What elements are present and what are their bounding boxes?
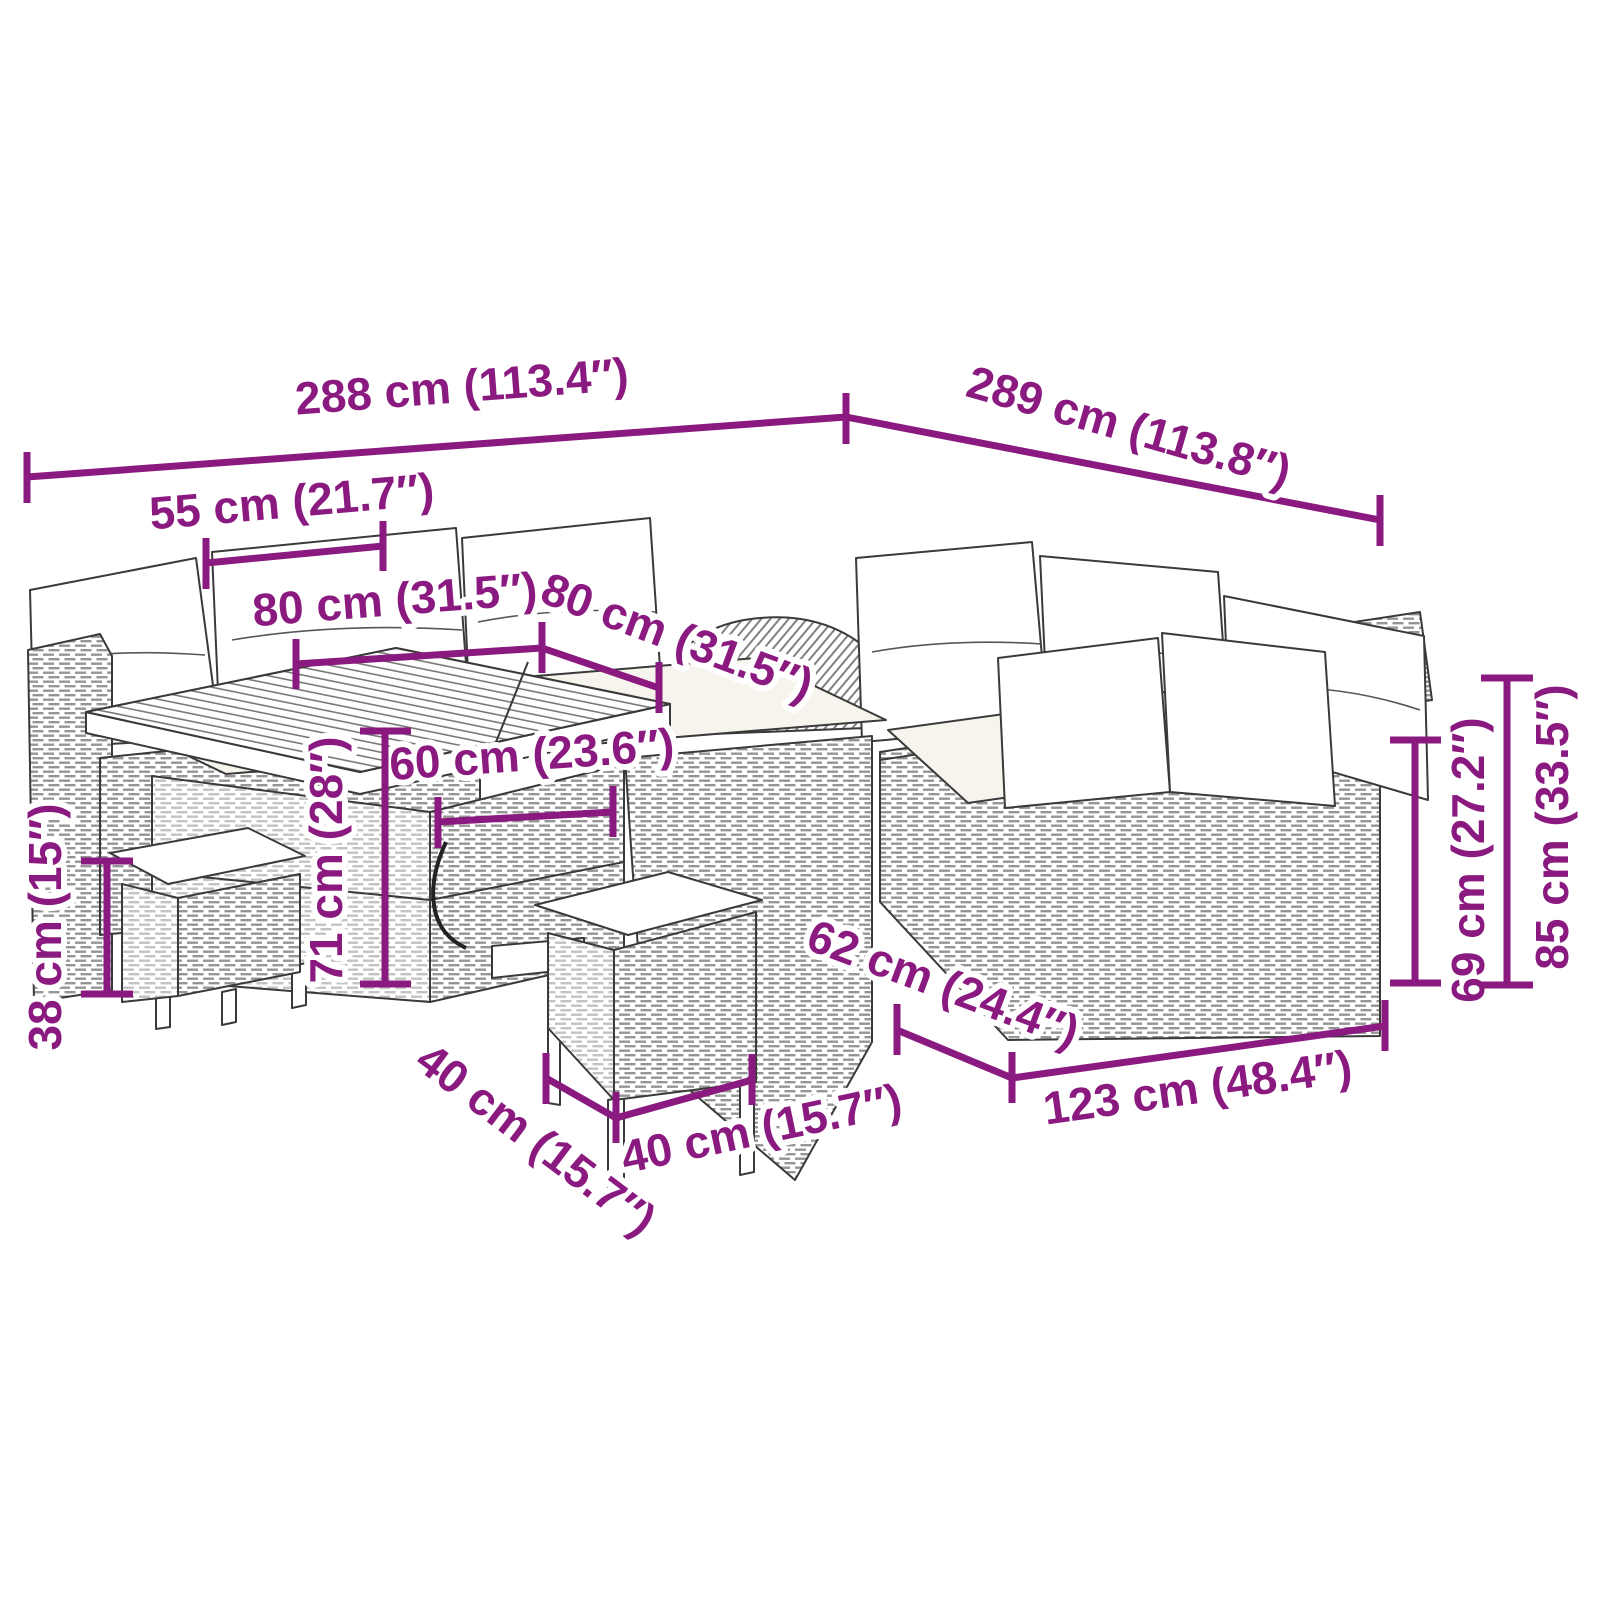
dim-line-289: 289 cm (113.8″) <box>846 355 1380 546</box>
dim-line-85: 85 cm (33.5″) <box>1481 678 1578 985</box>
dim-label-38: 38 cm (15″) <box>19 803 71 1050</box>
dimension-diagram: 288 cm (113.4″) 289 cm (113.8″) 55 cm (2… <box>0 0 1600 1600</box>
dim-label-69: 69 cm (27.2″) <box>1442 717 1494 1002</box>
diagram-canvas: 288 cm (113.4″) 289 cm (113.8″) 55 cm (2… <box>0 0 1600 1600</box>
dim-label-55: 55 cm (21.7″) <box>147 463 436 540</box>
dim-label-71: 71 cm (28″) <box>300 736 352 983</box>
dim-line-288: 288 cm (113.4″) <box>27 348 846 503</box>
dim-label-85: 85 cm (33.5″) <box>1526 684 1578 969</box>
dim-label-289: 289 cm (113.8″) <box>961 355 1296 497</box>
stool-left <box>110 828 306 1029</box>
dim-label-288: 288 cm (113.4″) <box>293 348 630 425</box>
